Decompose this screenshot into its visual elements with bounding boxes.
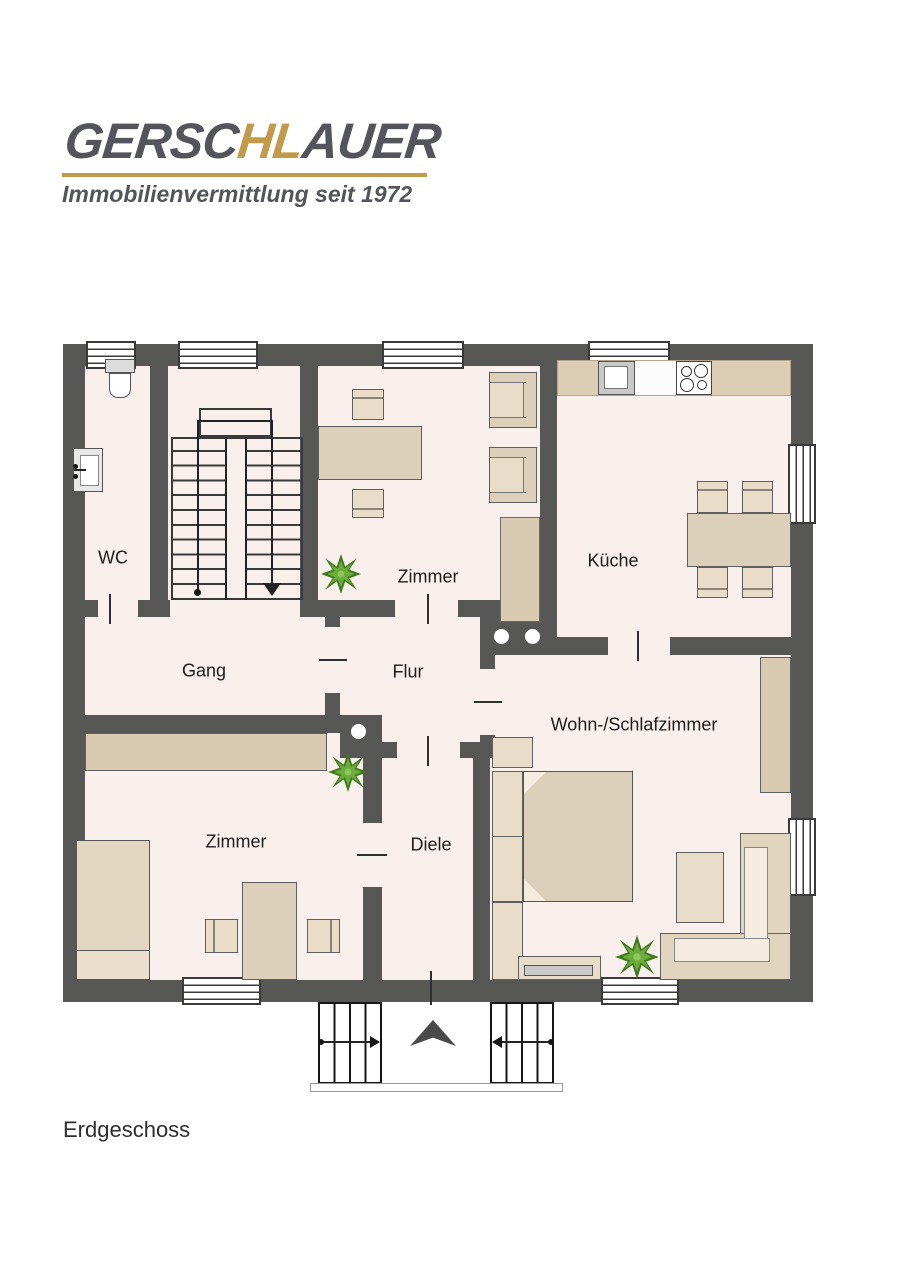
stairs-center-line [225, 437, 227, 600]
door-entrance [430, 971, 432, 1005]
desk-zimmer-top [318, 426, 422, 480]
stairs-landing [199, 408, 272, 437]
wardrobe-wohnzimmer [760, 657, 791, 793]
chair-icon [352, 389, 384, 420]
chair-icon [307, 919, 340, 953]
wall-flur-wohn-a [480, 655, 495, 669]
stairs-guide-across [197, 420, 273, 422]
toilet-icon [109, 373, 131, 398]
room-label-wc: WC [98, 548, 128, 569]
entrance-dot [318, 1039, 324, 1045]
door-gang-flur [319, 659, 347, 661]
wall-wc-stairs [150, 344, 168, 600]
wall-zimmer-bottom-b [458, 600, 502, 617]
logo: GERSCHLAUER Immobilienvermittlung seit 1… [62, 112, 437, 208]
armchair-icon [489, 372, 537, 428]
wall-diele-right [473, 742, 490, 980]
room-label-diele: Diele [410, 835, 451, 856]
logo-tagline: Immobilienvermittlung seit 1972 [62, 181, 437, 208]
entrance-arrow-icon [370, 1036, 380, 1048]
window-stairs [178, 341, 258, 369]
bed-double-mattress [523, 771, 633, 902]
chair-icon [205, 919, 238, 953]
stairs-guide-up [197, 421, 199, 593]
tv-sideboard [518, 956, 601, 980]
stairs-direction-arrow-icon [263, 583, 281, 596]
window-kueche-right [788, 444, 816, 524]
brand-left: GERSC [62, 113, 241, 169]
faucet-handle-icon [73, 474, 78, 479]
column-icon [525, 629, 540, 644]
kitchen-sink-basin-icon [604, 366, 628, 389]
room-label-kueche: Küche [587, 551, 638, 572]
plant-icon [327, 751, 369, 793]
entrance-arrow-line-left [320, 1041, 376, 1043]
sofa-seat [674, 938, 770, 962]
wall-outer-right [791, 344, 813, 1002]
column-icon [494, 629, 509, 644]
wall-gang-top-a [63, 600, 98, 617]
room-label-flur: Flur [393, 662, 424, 683]
brand-accent: HL [235, 113, 306, 169]
door-wc [109, 594, 111, 624]
room-label-wohn-schlafzimmer: Wohn-/Schlafzimmer [551, 715, 718, 736]
floor-plan-page: GERSCHLAUER Immobilienvermittlung seit 1… [0, 0, 920, 1282]
wall-zimmer-kueche [540, 344, 557, 645]
wall-block-flur-kueche [480, 617, 557, 655]
chair-icon [742, 481, 773, 513]
wall-diele-top-a [382, 742, 397, 758]
door-flur-wohnzimmer [474, 701, 502, 703]
floor-label: Erdgeschoss [63, 1117, 190, 1143]
brand-wordmark: GERSCHLAUER [62, 112, 443, 170]
entrance-arrow-line-right [496, 1041, 552, 1043]
kitchen-counter-white-segment [633, 361, 678, 395]
chair-icon [697, 567, 728, 598]
wall-outer-bottom [63, 980, 813, 1002]
armchair-icon [489, 447, 537, 503]
entrance-direction-icon [410, 1020, 456, 1046]
kitchen-table [687, 513, 791, 567]
wall-diele-left-b [363, 887, 382, 980]
desk-zimmer-bottom [242, 882, 297, 980]
room-label-zimmer-top: Zimmer [398, 567, 459, 588]
dresser-top [492, 737, 533, 768]
bed-pillow-icon [492, 771, 523, 837]
bed-single [76, 840, 150, 980]
stairs-start-dot [194, 589, 201, 596]
logo-underline [62, 173, 427, 177]
room-label-gang: Gang [182, 661, 226, 682]
door-diele-flur [427, 736, 429, 766]
wardrobe-zimmer-bottom [85, 733, 327, 771]
sofa-seat [744, 847, 768, 947]
brand-right: AUER [300, 113, 444, 169]
stairs-center-line [245, 437, 247, 600]
faucet-handle-icon [73, 464, 78, 469]
chair-icon [697, 481, 728, 513]
column-icon [351, 724, 366, 739]
door-diele-zimmer [357, 854, 387, 856]
plant-icon [320, 553, 362, 595]
wall-zimmer-bottom-a [303, 600, 395, 617]
coffee-table [676, 852, 724, 923]
stairs-guide-down [271, 420, 273, 583]
door-zimmer-top [427, 594, 429, 624]
chair-icon [352, 489, 384, 518]
toilet-tank-icon [105, 359, 135, 373]
stairs-steps-left [173, 437, 225, 598]
entrance-dot [548, 1039, 554, 1045]
window-zimmer-bottom [182, 977, 261, 1005]
chair-icon [742, 567, 773, 598]
window-wohnzimmer-bottom [601, 977, 679, 1005]
wall-gang-bottom [63, 715, 340, 733]
stairs-steps-right [247, 437, 301, 598]
door-kueche-wohnzimmer [637, 631, 639, 661]
wall-gang-top-b [138, 600, 170, 617]
wall-kueche-bottom-b [670, 637, 791, 655]
wall-gang-flur-a [325, 617, 340, 627]
faucet-icon [74, 469, 86, 471]
window-zimmer-top [382, 341, 464, 369]
entrance-arrow-icon [492, 1036, 502, 1048]
bed-pillow-icon [492, 836, 523, 902]
plant-icon [614, 934, 660, 980]
room-label-zimmer-bottom: Zimmer [206, 832, 267, 853]
stove-icon [676, 361, 712, 395]
wardrobe-zimmer-top [500, 517, 540, 622]
window-wohnzimmer-right [788, 818, 816, 896]
entrance-platform [310, 1083, 563, 1092]
